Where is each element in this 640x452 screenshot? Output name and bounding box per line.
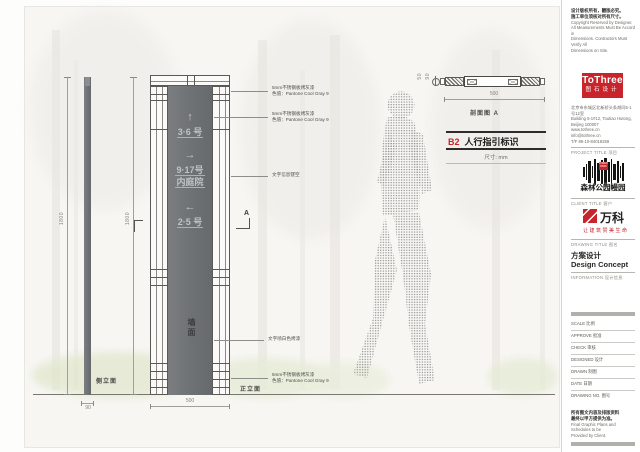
front-view-label: 正立面 <box>240 384 261 393</box>
dimension-label: 500 <box>474 91 514 97</box>
section-view-label: 剖面图 A <box>470 108 499 117</box>
section-cut-line <box>134 220 135 232</box>
bolt-symbol <box>432 78 440 86</box>
ground-line <box>33 394 555 395</box>
sign-top-cap <box>150 75 230 86</box>
dimension-tick <box>64 77 71 78</box>
field-scale: SCALE 比例 <box>571 319 635 331</box>
field-designed: DESIGNED 设计 <box>571 355 635 367</box>
field-date: DATE 日期 <box>571 379 635 391</box>
side-view-pole <box>84 77 91 395</box>
dimension-line <box>67 77 68 395</box>
drawing-item-title: B2人行指引标识 <box>448 135 546 148</box>
section-end-plate <box>540 78 545 85</box>
field-approve: APPROVE 批准 <box>571 331 635 343</box>
leader-line <box>231 91 268 92</box>
unit-note: 尺寸: mm <box>448 153 544 161</box>
section-cut-line <box>249 218 250 229</box>
sign-destination: 9·17号 <box>168 165 212 175</box>
annotation: 文字信息镂空 <box>272 172 300 178</box>
sign-frame-right <box>212 86 230 395</box>
address-block: 北京市东城区北新桥头条胡同5-1号12室 Building 5-1#12, To… <box>571 105 635 144</box>
divider <box>571 198 635 199</box>
annotation: 文字喷白色烤漆 <box>268 336 300 342</box>
dimension-tick <box>444 97 445 102</box>
item-code: B2 <box>448 137 460 147</box>
side-view-pole-cap <box>85 77 90 86</box>
grass <box>488 358 558 396</box>
section-fixing <box>467 79 477 85</box>
client-name: 万科 <box>600 209 624 226</box>
tothree-logo-name: ToThree <box>582 75 623 87</box>
person-silhouette <box>333 88 459 396</box>
project-name: 森林公园幔园 <box>571 182 635 193</box>
annotation: 5mm不锈钢板烤灰漆色值：Pantone Cool Gray 9 <box>272 372 329 384</box>
leader-line <box>214 340 264 341</box>
tree-trunk <box>52 30 60 390</box>
title-rule-thin <box>446 163 546 164</box>
annotation: 5mm不锈钢板烤灰漆色值：Pantone Cool Gray 9 <box>272 111 329 123</box>
sign-frame-left <box>150 86 168 395</box>
bolt-symbol-line <box>435 76 436 86</box>
field-check: CHECK 审核 <box>571 343 635 355</box>
section-hatch-left <box>445 77 464 86</box>
drawing-title-en: Design Concept <box>571 260 635 269</box>
sign-destination: 2·5 号 <box>168 217 212 227</box>
section-dim-small: 90 <box>425 73 431 80</box>
dimension-tick <box>544 97 545 102</box>
cap-line <box>187 76 188 85</box>
forest-park-tag: FOREST PARK <box>599 162 608 170</box>
dimension-line <box>444 99 545 100</box>
dimension-label: 1800 <box>125 212 131 225</box>
title-block: 设计版权所有，翻版必究。 施工单位须核对所有尺寸。 Copyright Rese… <box>561 0 640 452</box>
annotation: 5mm不锈钢板烤灰漆色值：Pantone Cool Gray 9 <box>272 85 329 97</box>
footer-bar <box>571 442 635 446</box>
dimension-tick <box>64 394 71 395</box>
info-header: INFORMATION 设计信息 <box>571 275 635 281</box>
section-marker-letter: A <box>244 210 249 217</box>
tree-trunk <box>74 60 78 390</box>
dimension-line <box>133 77 134 395</box>
dimension-label: 90 <box>78 405 98 411</box>
dimension-tick <box>130 394 137 395</box>
sign-destination: 3·6 号 <box>168 127 212 137</box>
tree-trunk <box>540 80 545 390</box>
sign-panel: ↑ 3·6 号 → 9·17号 内庭院 ← 2·5 号 墙面 <box>168 86 212 395</box>
cap-line <box>151 81 229 82</box>
tree-trunk <box>258 40 267 390</box>
section-cut-line <box>236 228 250 229</box>
dimension-label: 500 <box>170 398 210 404</box>
side-view-label: 侧立面 <box>96 376 117 385</box>
footer-note: 所有图文内容及排版资料 最终以甲方提供为准。 Final Graphic Pla… <box>571 410 635 438</box>
vanke-logo-icon <box>583 209 597 223</box>
field-drawn: DRAWN 制图 <box>571 367 635 379</box>
title-rule-bottom <box>446 148 546 150</box>
info-fields: SCALE 比例 APPROVE 批准 CHECK 审核 DESIGNED 设计… <box>571 319 635 402</box>
info-bar <box>571 312 635 316</box>
cap-line <box>194 76 195 85</box>
leader-line <box>231 378 268 379</box>
dimension-tick <box>150 404 151 409</box>
section-dim-small: 50 <box>417 73 423 80</box>
project-header: PROJECT TITLE 项目 <box>571 150 635 156</box>
arrow-up-icon: ↑ <box>168 112 212 122</box>
item-name: 人行指引标识 <box>465 137 519 147</box>
section-hatch-right <box>521 77 540 86</box>
tothree-logo: ToThree 图石设计 <box>582 73 623 98</box>
tothree-logo-sub: 图石设计 <box>582 87 623 94</box>
title-rule-top <box>446 131 546 133</box>
tree-trunk <box>492 50 500 390</box>
divider <box>571 239 635 240</box>
dimension-tick <box>229 404 230 409</box>
client-header: CLIENT TITLE 客户 <box>571 201 635 207</box>
section-cut-line <box>134 220 143 221</box>
leader-line <box>214 117 268 118</box>
field-drawing-no: DRAWING NO. 图号 <box>571 391 635 402</box>
dimension-tick <box>130 77 137 78</box>
divider <box>571 272 635 273</box>
client-slogan: 让建筑赞美生命 <box>571 227 635 234</box>
section-fixing <box>508 79 518 85</box>
drawing-header: DRAWING TITLE 图名 <box>571 242 635 248</box>
sign-destination: 内庭院 <box>168 177 212 187</box>
dimension-line <box>150 406 230 407</box>
copyright-note: 设计版权所有，翻版必究。 施工单位须核对所有尺寸。 Copyright Rese… <box>571 8 635 53</box>
arrow-left-icon: ← <box>168 202 212 212</box>
wall-label: 墙面 <box>186 318 197 338</box>
divider <box>571 147 635 148</box>
dimension-label: 1800 <box>59 212 65 225</box>
arrow-right-icon: → <box>168 150 212 160</box>
leader-line <box>231 176 268 177</box>
